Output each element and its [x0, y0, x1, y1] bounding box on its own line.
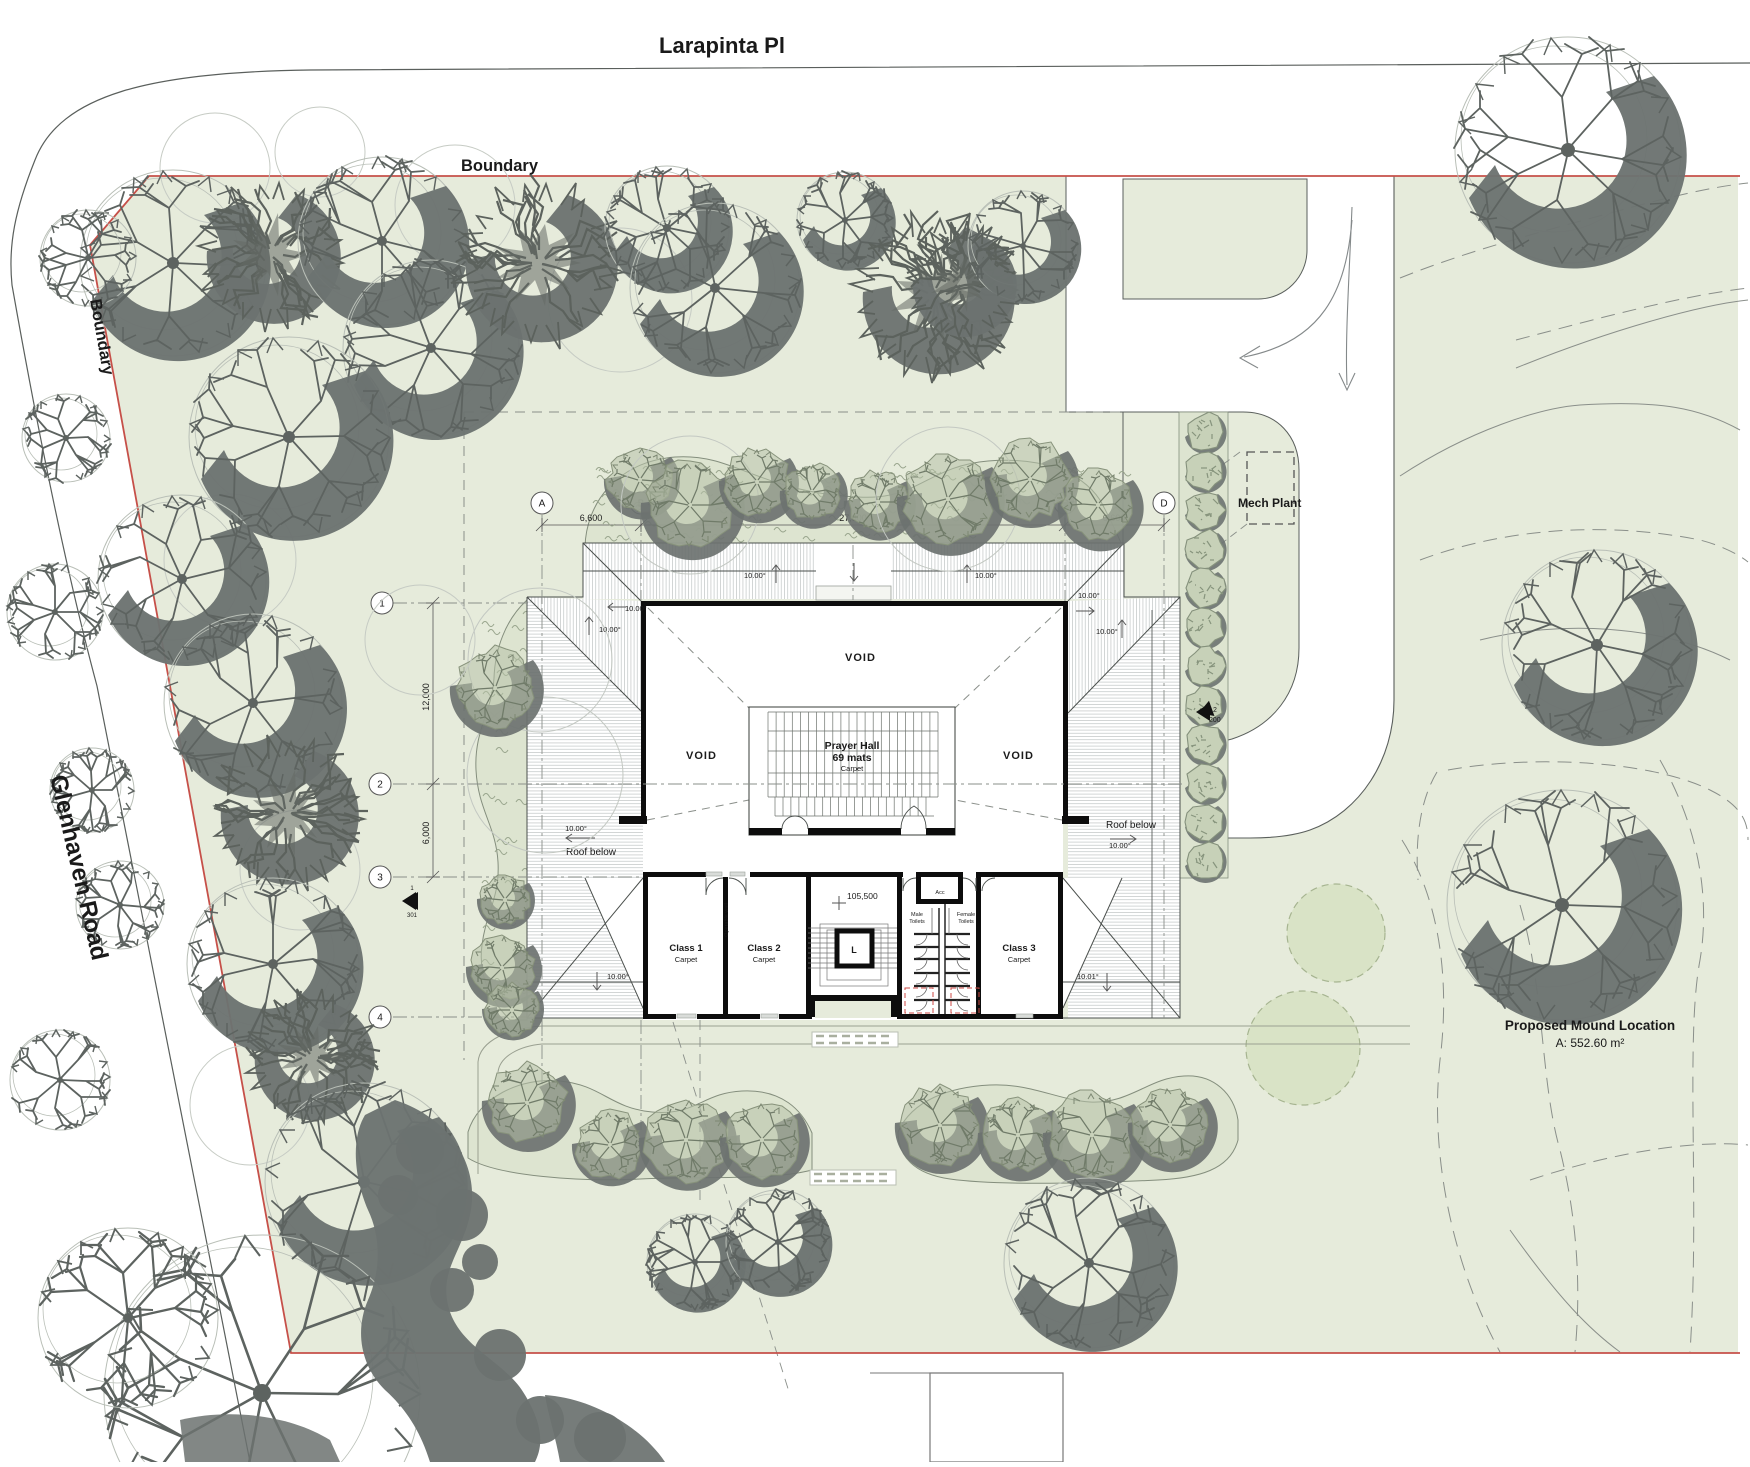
svg-text:Mech Plant: Mech Plant: [1238, 496, 1301, 510]
svg-text:10.00°: 10.00°: [599, 625, 621, 634]
svg-text:301: 301: [407, 913, 418, 919]
svg-text:6,600: 6,600: [580, 513, 603, 523]
svg-text:10.00°: 10.00°: [565, 824, 587, 833]
svg-text:Female: Female: [957, 912, 975, 918]
svg-text:3: 3: [377, 873, 383, 884]
svg-text:10.00°: 10.00°: [975, 571, 997, 580]
svg-text:Roof below: Roof below: [566, 847, 617, 858]
svg-text:Roof below: Roof below: [1106, 820, 1157, 831]
svg-text:A: 552.60 m²: A: 552.60 m²: [1556, 1036, 1625, 1050]
svg-text:200: 200: [1209, 717, 1221, 724]
svg-text:2: 2: [377, 780, 383, 791]
svg-text:10.01°: 10.01°: [1077, 972, 1099, 981]
svg-text:10.00°: 10.00°: [1096, 627, 1118, 636]
svg-text:Class 3: Class 3: [1002, 943, 1035, 954]
svg-text:Acc: Acc: [935, 890, 944, 896]
svg-text:2: 2: [1213, 707, 1217, 714]
svg-text:Male: Male: [911, 912, 923, 918]
svg-text:4: 4: [377, 1013, 383, 1024]
svg-text:Larapinta Pl: Larapinta Pl: [659, 33, 785, 58]
svg-text:10.00°: 10.00°: [607, 972, 629, 981]
svg-text:Class 1: Class 1: [669, 943, 703, 954]
svg-text:105,500: 105,500: [847, 891, 878, 901]
svg-text:10.00°: 10.00°: [1078, 591, 1100, 600]
svg-text:VOID: VOID: [686, 750, 717, 762]
svg-text:Carpet: Carpet: [753, 955, 776, 964]
svg-text:L: L: [851, 945, 857, 955]
svg-text:12,000: 12,000: [421, 683, 431, 711]
svg-text:Carpet: Carpet: [841, 764, 864, 773]
svg-text:69 mats: 69 mats: [832, 752, 871, 764]
svg-text:VOID: VOID: [845, 652, 876, 664]
svg-text:VOID: VOID: [1003, 750, 1034, 762]
svg-text:Proposed Mound Location: Proposed Mound Location: [1505, 1018, 1675, 1033]
svg-text:Prayer Hall: Prayer Hall: [825, 740, 880, 752]
svg-text:Toilets: Toilets: [909, 919, 925, 925]
svg-text:6,000: 6,000: [421, 822, 431, 845]
svg-text:D: D: [1160, 499, 1167, 510]
svg-text:10.00°: 10.00°: [625, 604, 647, 613]
svg-text:Operable wall: Operable wall: [724, 903, 730, 937]
svg-text:Boundary: Boundary: [461, 157, 539, 175]
svg-text:Carpet: Carpet: [1008, 955, 1031, 964]
svg-text:A: A: [539, 499, 546, 510]
svg-text:Class 2: Class 2: [747, 943, 780, 954]
svg-text:10.00°: 10.00°: [1109, 841, 1131, 850]
svg-text:Carpet: Carpet: [675, 955, 698, 964]
svg-text:10.00°: 10.00°: [744, 571, 766, 580]
svg-text:Toilets: Toilets: [958, 919, 974, 925]
